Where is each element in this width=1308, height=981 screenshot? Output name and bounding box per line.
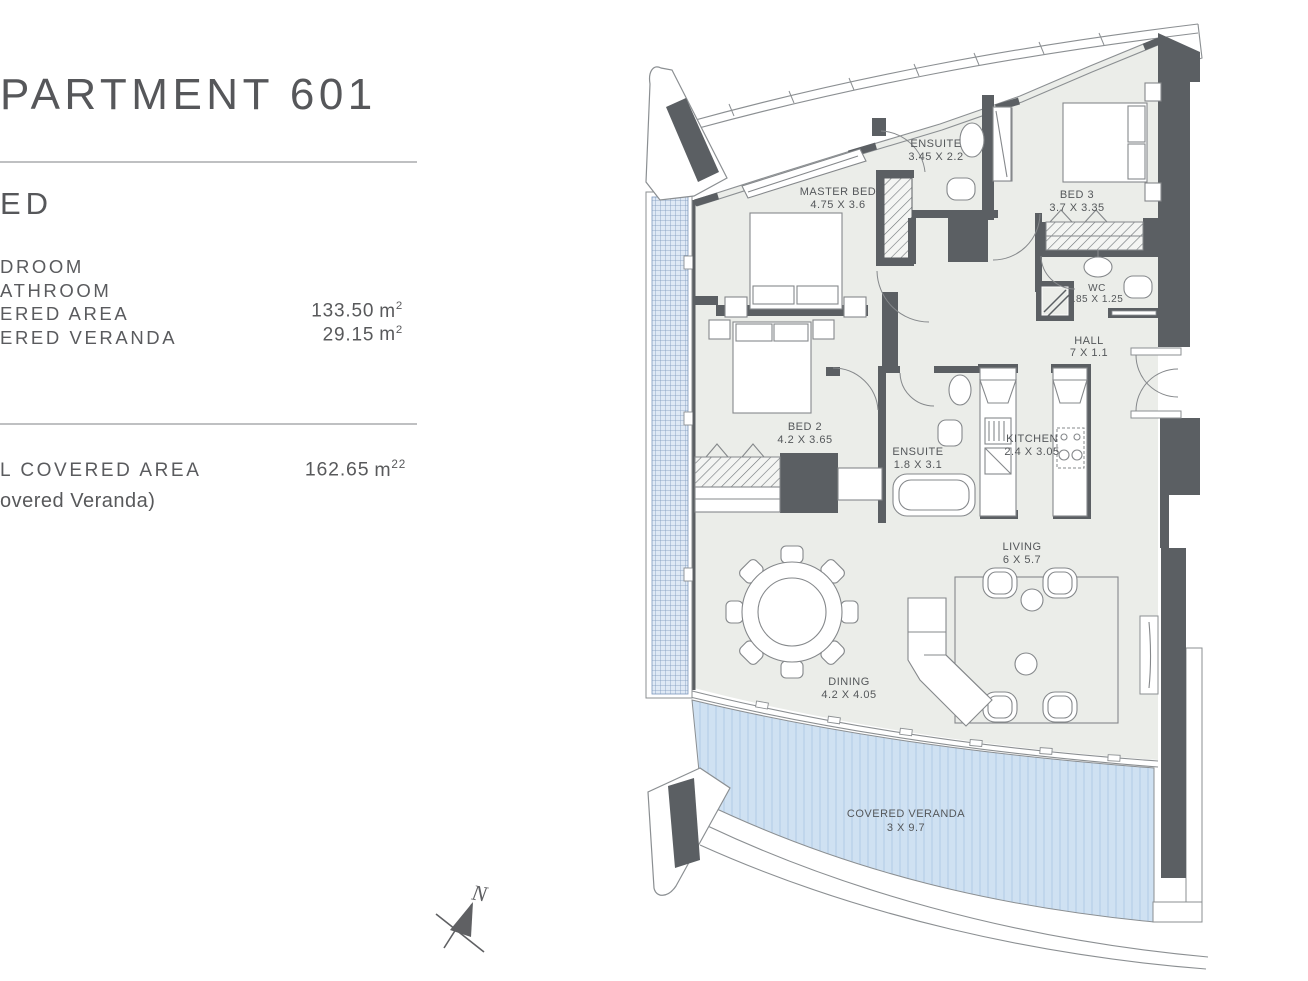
label-kitchen-dims: 2.4 X 3.05 bbox=[1004, 446, 1059, 458]
label-wc-dims: .85 X 1.25 bbox=[1073, 294, 1124, 305]
floorplan-drawing: ENSUITE 3.45 X 2.2 MASTER BED 4.75 X 3.6… bbox=[0, 0, 1308, 981]
label-ensuite-top: ENSUITE bbox=[910, 138, 961, 150]
label-dining-dims: 4.2 X 4.05 bbox=[821, 689, 876, 701]
floorplan-page: PARTMENT 601 ED DROOM ATHROOM ERED AREA … bbox=[0, 0, 1308, 981]
label-dining: DINING bbox=[828, 676, 870, 688]
label-master-bed-dims: 4.75 X 3.6 bbox=[810, 199, 865, 211]
label-veranda: COVERED VERANDA bbox=[847, 808, 965, 820]
label-ensuite-top-dims: 3.45 X 2.2 bbox=[908, 151, 963, 163]
top-fin bbox=[646, 67, 727, 200]
label-kitchen: KITCHEN bbox=[1006, 433, 1058, 445]
north-compass: N bbox=[436, 879, 490, 952]
label-living-dims: 6 X 5.7 bbox=[1003, 554, 1041, 566]
label-living: LIVING bbox=[1002, 541, 1041, 553]
label-master-bed: MASTER BED bbox=[800, 186, 877, 198]
label-veranda-dims: 3 X 9.7 bbox=[887, 822, 925, 834]
label-wc: WC bbox=[1088, 283, 1106, 294]
label-bed2: BED 2 bbox=[788, 421, 822, 433]
louvre-screen bbox=[646, 192, 694, 698]
north-label: N bbox=[469, 879, 490, 907]
label-ensuite2: ENSUITE bbox=[892, 446, 943, 458]
label-bed2-dims: 4.2 X 3.65 bbox=[777, 434, 832, 446]
bottom-fin bbox=[648, 768, 730, 895]
label-hall-dims: 7 X 1.1 bbox=[1070, 347, 1108, 359]
label-bed3-dims: 3.7 X 3.35 bbox=[1049, 202, 1104, 214]
dining-table bbox=[726, 546, 858, 678]
label-ensuite2-dims: 1.8 X 3.1 bbox=[894, 459, 943, 471]
label-hall: HALL bbox=[1074, 335, 1104, 347]
label-bed3: BED 3 bbox=[1060, 189, 1094, 201]
